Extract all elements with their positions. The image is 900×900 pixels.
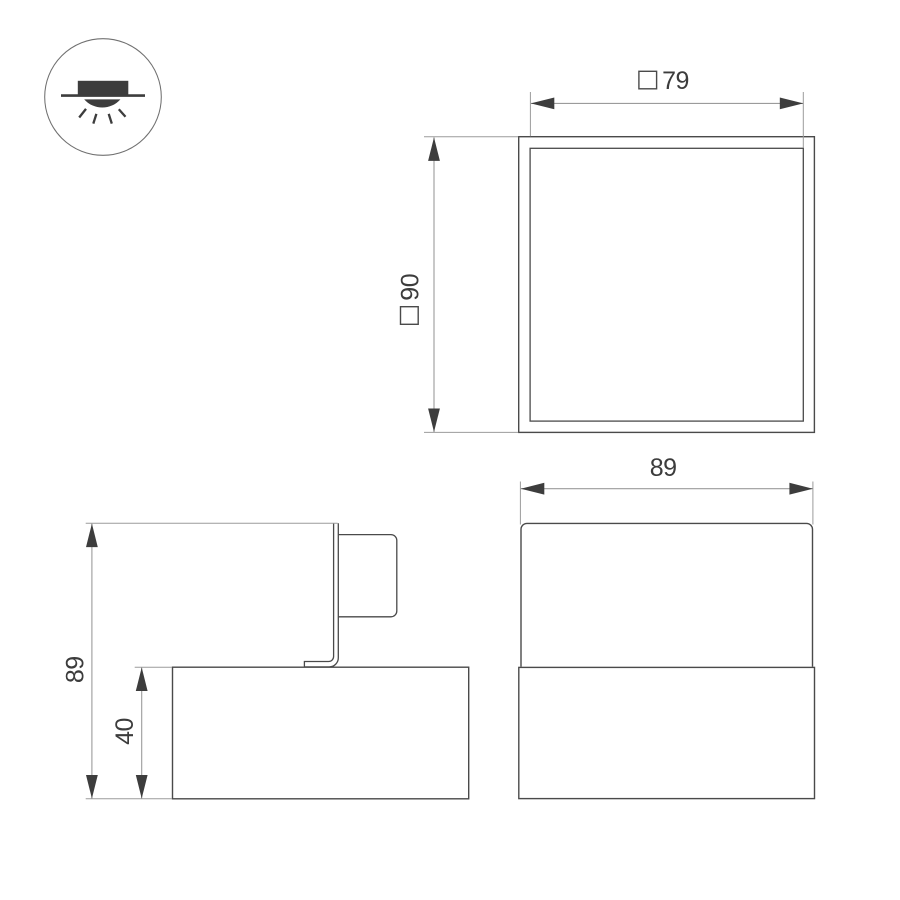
svg-text:90: 90 [397, 274, 425, 301]
svg-text:40: 40 [111, 718, 139, 745]
svg-text:79: 79 [662, 67, 689, 95]
svg-text:89: 89 [62, 656, 90, 683]
svg-text:89: 89 [650, 454, 677, 482]
